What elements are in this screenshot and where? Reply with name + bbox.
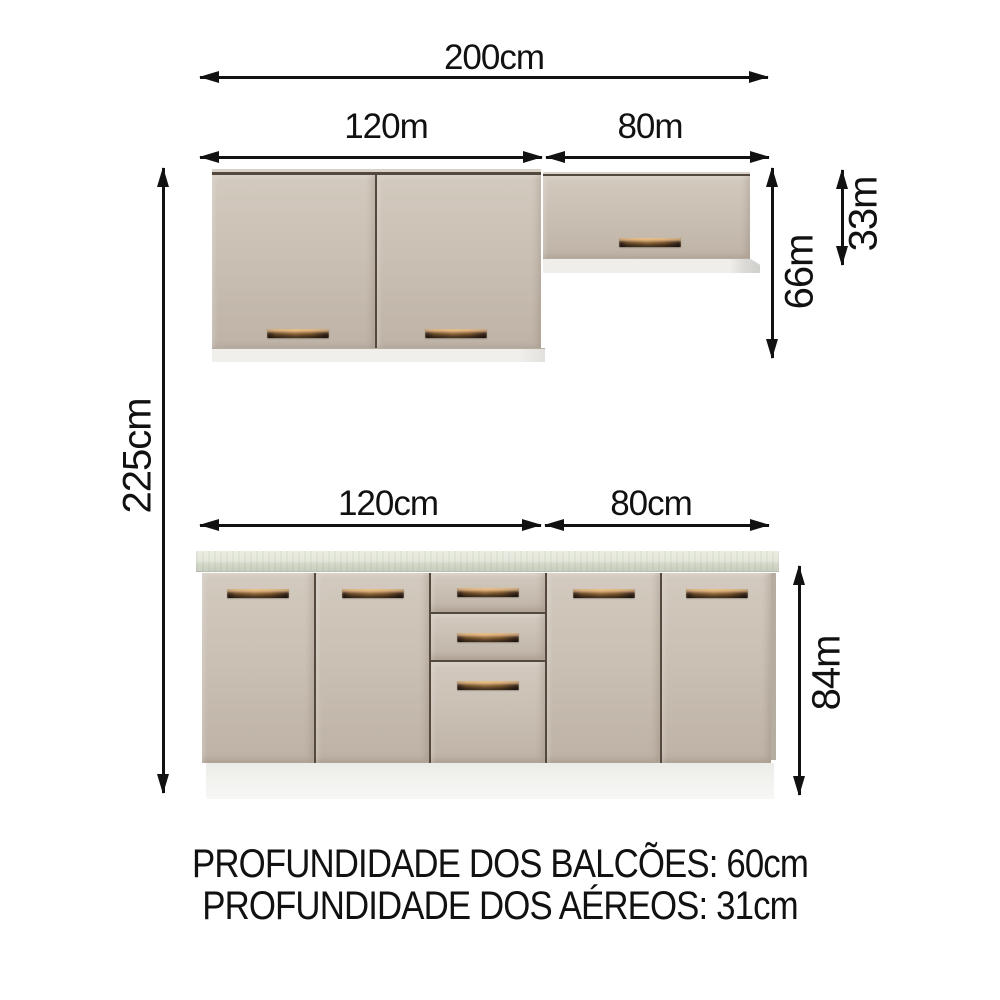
dimension-arrow-base-right-width <box>545 524 769 527</box>
depth-note-wall-units: PROFUNDIDADE DOS AÉREOS: 31cm <box>65 884 935 929</box>
wall-cabinet-underside <box>543 258 760 273</box>
door-handle <box>342 589 404 598</box>
base-cabinet-side-panel <box>771 573 776 760</box>
base-cabinet-drawer <box>431 614 545 660</box>
countertop <box>196 551 779 572</box>
dimension-label-total-height: 225cm <box>116 398 161 513</box>
door-handle <box>425 329 487 338</box>
base-cabinet-door <box>316 573 429 763</box>
wall-cabinet-underside <box>212 348 545 362</box>
dimension-arrow-wall-left-width <box>200 156 542 159</box>
dimension-label-base-right-width: 80cm <box>610 484 692 524</box>
wall-cabinet-right-door <box>377 175 541 351</box>
drawer-handle <box>457 588 519 597</box>
wall-cabinet-double-door <box>212 169 541 351</box>
door-handle <box>619 238 681 247</box>
base-cabinet-door <box>662 573 771 763</box>
dimension-arrow-wall-tall-height <box>771 168 774 358</box>
drawer-handle <box>457 633 519 642</box>
kitchen-dimension-diagram: 200cm 120m 80m 225cm 66m 33m 120cm 80cm <box>0 0 1000 1000</box>
base-cabinet-door <box>547 573 660 763</box>
base-cabinet-drawer <box>431 662 545 763</box>
dimension-arrow-base-left-width <box>200 524 541 527</box>
base-cabinet-plinth <box>206 763 774 799</box>
door-handle <box>573 589 635 598</box>
wall-cabinet-left-door <box>212 175 375 351</box>
drawer-handle <box>457 681 519 690</box>
base-cabinet-door <box>202 573 314 763</box>
door-handle <box>267 329 329 338</box>
dimension-label-total-width: 200cm <box>444 38 544 78</box>
dimension-label-wall-short-height: 33m <box>842 177 887 252</box>
dimension-arrow-wall-right-width <box>546 156 769 159</box>
door-handle <box>227 589 289 598</box>
dimension-label-base-left-width: 120cm <box>338 484 438 524</box>
dimension-label-wall-right-width: 80m <box>617 107 682 147</box>
depth-note-counters: PROFUNDIDADE DOS BALCÕES: 60cm <box>65 842 935 887</box>
dimension-arrow-total-width <box>200 76 768 79</box>
base-cabinet <box>202 573 771 763</box>
door-handle <box>686 589 748 598</box>
wall-cabinet-flip-door <box>543 176 750 260</box>
wall-cabinet-horizontal-door <box>543 172 750 260</box>
base-cabinet-drawer <box>431 573 545 612</box>
dimension-arrow-base-height <box>798 566 801 795</box>
dimension-arrow-total-height <box>162 168 165 793</box>
dimension-label-wall-tall-height: 66m <box>778 235 823 310</box>
dimension-label-wall-left-width: 120m <box>344 107 428 147</box>
dimension-label-base-height: 84m <box>805 636 850 711</box>
